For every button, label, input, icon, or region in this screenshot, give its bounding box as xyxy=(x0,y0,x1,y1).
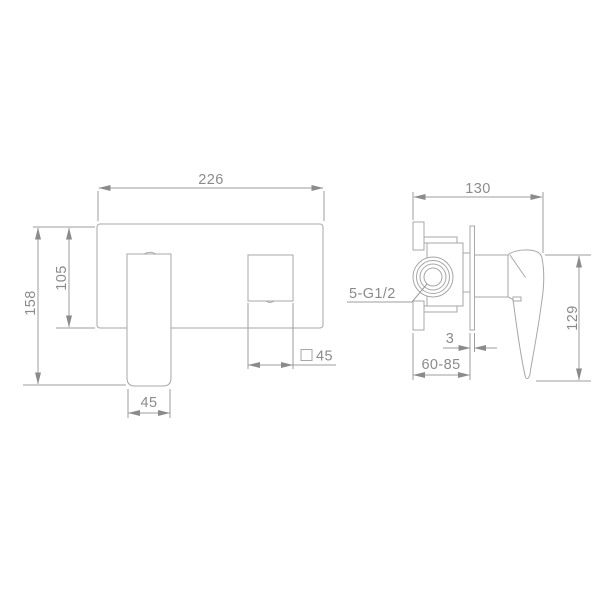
dim-plate-width: 226 xyxy=(98,172,324,221)
side-valve-neck xyxy=(463,253,470,292)
side-handle-base xyxy=(475,255,509,297)
side-mount-tab-top xyxy=(413,222,424,250)
dim-handle-width: 45 xyxy=(128,389,170,418)
side-wall-flange xyxy=(470,226,475,330)
front-handle xyxy=(127,254,171,386)
dim-flange-thickness-value: 3 xyxy=(446,331,454,347)
side-body-flange-top xyxy=(424,237,457,243)
dim-install-depth-value: 60-85 xyxy=(421,357,460,373)
side-connection-port xyxy=(413,257,453,297)
dim-plate-width-value: 226 xyxy=(198,172,223,188)
front-spout xyxy=(248,255,293,301)
dim-height: 129 xyxy=(536,255,591,381)
front-view: 226 158 105 45 45 xyxy=(23,172,336,418)
dim-height-value: 129 xyxy=(565,305,581,330)
square-section-symbol xyxy=(301,350,312,361)
faucet-dimension-drawing: 226 158 105 45 45 xyxy=(0,0,600,600)
dim-install-depth: 60-85 xyxy=(413,333,470,380)
side-mount-tab-bottom xyxy=(413,301,424,330)
dim-spout-section-value: 45 xyxy=(316,349,333,365)
side-view: 130 129 3 60-85 5-G1/2 xyxy=(347,181,591,381)
dim-handle-width-value: 45 xyxy=(141,395,158,411)
dim-plate-height: 105 xyxy=(54,228,95,328)
technical-drawing-page: 226 158 105 45 45 xyxy=(0,0,600,600)
connection-label-value: 5-G1/2 xyxy=(349,286,396,302)
dim-plate-height-value: 105 xyxy=(54,265,70,290)
dim-depth-value: 130 xyxy=(465,181,490,197)
side-body-flange-bottom xyxy=(424,306,457,312)
side-handle-lever xyxy=(508,250,544,379)
dim-total-height-value: 158 xyxy=(23,290,39,315)
